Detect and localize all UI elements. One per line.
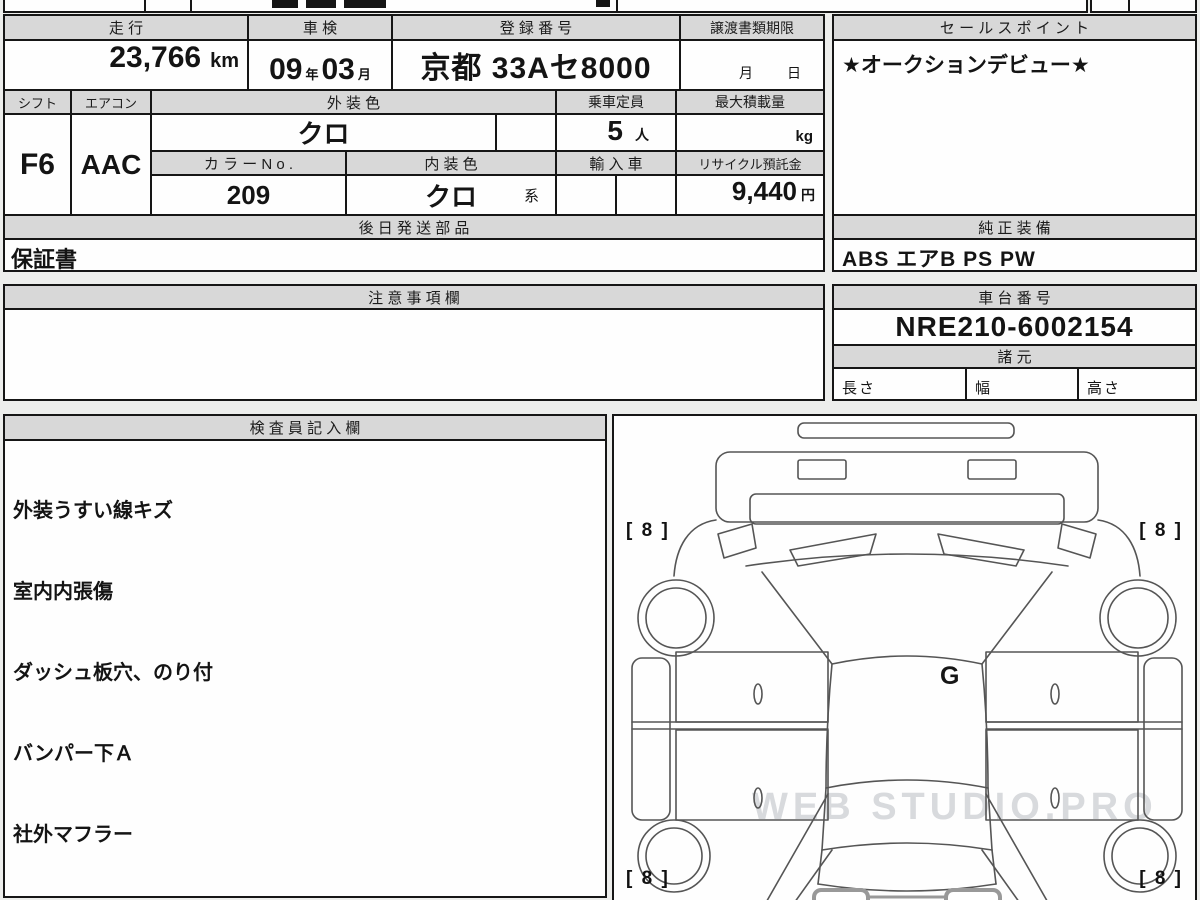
import-car-cell-2 (615, 174, 677, 216)
car-outline-diagram: G (614, 416, 1195, 900)
recycle-deposit-value: 9,440 円 (675, 174, 825, 216)
auction-sheet: 走 行 車 検 登 録 番 号 譲渡書類期限 セ ー ル ス ポ イ ン ト 2… (0, 0, 1200, 900)
inspector-notes-box: 外装うすい線キズ 室内内張傷 ダッシュ板穴、のり付 バンパー下Ａ 社外マフラー … (3, 439, 607, 898)
mileage-value: 23,766 km (3, 39, 249, 91)
aircon-header: エアコン (70, 89, 152, 115)
clipped-top-cell (1128, 0, 1197, 13)
clipped-top-cell (144, 0, 192, 13)
spec-width-label: 幅 (975, 377, 992, 398)
shipped-later-header: 後 日 発 送 部 品 (3, 214, 825, 240)
spec-height-label: 高さ (1087, 377, 1121, 398)
inspector-notes-header: 検 査 員 記 入 欄 (3, 414, 607, 441)
clipped-text-fragment (306, 0, 336, 8)
sales-point-box: ★オークションデビュー★ (832, 39, 1197, 216)
exterior-color-header: 外 装 色 (150, 89, 557, 115)
corner-mark-bottom-left: [ 8 ] (626, 868, 670, 890)
max-load-value: kg (675, 113, 825, 152)
interior-color-suffix: 系 (524, 185, 539, 206)
clipped-text-fragment (596, 0, 610, 7)
inspection-year: 09 (269, 53, 302, 87)
mileage-number: 23,766 (109, 41, 201, 75)
interior-color-value: クロ 系 (345, 174, 557, 216)
corner-mark-top-left: [ 8 ] (626, 520, 670, 542)
clipped-top-cell (3, 0, 146, 13)
corner-mark-bottom-right: [ 8 ] (1139, 868, 1183, 890)
capacity-unit: 人 (635, 125, 649, 145)
shift-header: シフト (3, 89, 72, 115)
inspector-note-line: ダッシュ板穴、のり付 (13, 660, 597, 687)
inspector-note-line: 外装うすい線キズ (13, 498, 597, 525)
import-car-header: 輸 入 車 (555, 150, 677, 176)
grade-label: G (940, 662, 959, 690)
specs-header: 諸 元 (832, 344, 1197, 369)
inspection-month-unit: 月 (358, 64, 371, 83)
max-load-unit: kg (795, 128, 813, 145)
chassis-number-value: NRE210-6002154 (832, 308, 1197, 346)
inspector-note-line: 室内内張傷 (13, 579, 597, 606)
recycle-deposit-unit: 円 (801, 185, 815, 205)
shipped-later-value: 保証書 (3, 238, 825, 272)
registration-value: 京都 33Aセ8000 (391, 39, 681, 91)
mileage-unit: km (210, 50, 239, 73)
cautions-box (3, 308, 825, 401)
chassis-number-header: 車 台 番 号 (832, 284, 1197, 310)
capacity-number: 5 (607, 115, 623, 147)
recycle-deposit-header: リサイクル預託金 (675, 150, 825, 176)
exterior-color-value: クロ (150, 113, 497, 152)
genuine-equipment-text: ABS エアB PS PW (842, 243, 1036, 273)
cautions-header: 注 意 事 項 欄 (3, 284, 825, 310)
inspection-header: 車 検 (247, 14, 393, 41)
max-load-header: 最大積載量 (675, 89, 825, 115)
sales-point-text: ★オークションデビュー★ (834, 41, 1195, 87)
shipped-later-text: 保証書 (11, 242, 77, 274)
clipped-text-fragment (272, 0, 298, 8)
sales-point-header: セ ー ル ス ポ イ ン ト (832, 14, 1197, 41)
clipped-top-cell (616, 0, 1088, 13)
transfer-deadline-value: 月 日 (679, 39, 825, 91)
capacity-value: 5 人 (555, 113, 677, 152)
spec-width-cell: 幅 (965, 367, 1079, 401)
spec-length-label: 長さ (842, 377, 876, 398)
aircon-value: AAC (70, 113, 152, 216)
interior-color-header: 内 装 色 (345, 150, 557, 176)
spec-length-cell: 長さ (832, 367, 967, 401)
car-diagram-box: WEB STUDIO.PRO (612, 414, 1197, 900)
exterior-color-extra-cell (495, 113, 557, 152)
genuine-equipment-header: 純 正 装 備 (832, 214, 1197, 240)
transfer-month-label: 月 (739, 63, 753, 83)
color-no-header: カ ラ ー N o . (150, 150, 347, 176)
shift-value: F6 (3, 113, 72, 216)
mileage-header: 走 行 (3, 14, 249, 41)
color-no-value: 209 (150, 174, 347, 216)
interior-color-text: クロ (425, 177, 477, 214)
registration-header: 登 録 番 号 (391, 14, 681, 41)
spec-height-cell: 高さ (1077, 367, 1197, 401)
transfer-deadline-header: 譲渡書類期限 (679, 14, 825, 41)
capacity-header: 乗車定員 (555, 89, 677, 115)
inspection-value: 09 年 03 月 (247, 39, 393, 91)
inspector-note-line: バンパー下Ａ (13, 741, 597, 768)
recycle-deposit-number: 9,440 (732, 176, 797, 207)
corner-mark-top-right: [ 8 ] (1139, 520, 1183, 542)
clipped-top-cell (190, 0, 618, 13)
transfer-day-label: 日 (787, 63, 801, 83)
import-car-cell-1 (555, 174, 617, 216)
genuine-equipment-value: ABS エアB PS PW (832, 238, 1197, 272)
inspector-note-line: 社外マフラー (13, 822, 597, 849)
clipped-top-cell (1090, 0, 1130, 13)
inspection-month: 03 (322, 53, 355, 87)
clipped-text-fragment (344, 0, 386, 8)
inspection-year-unit: 年 (305, 64, 318, 83)
